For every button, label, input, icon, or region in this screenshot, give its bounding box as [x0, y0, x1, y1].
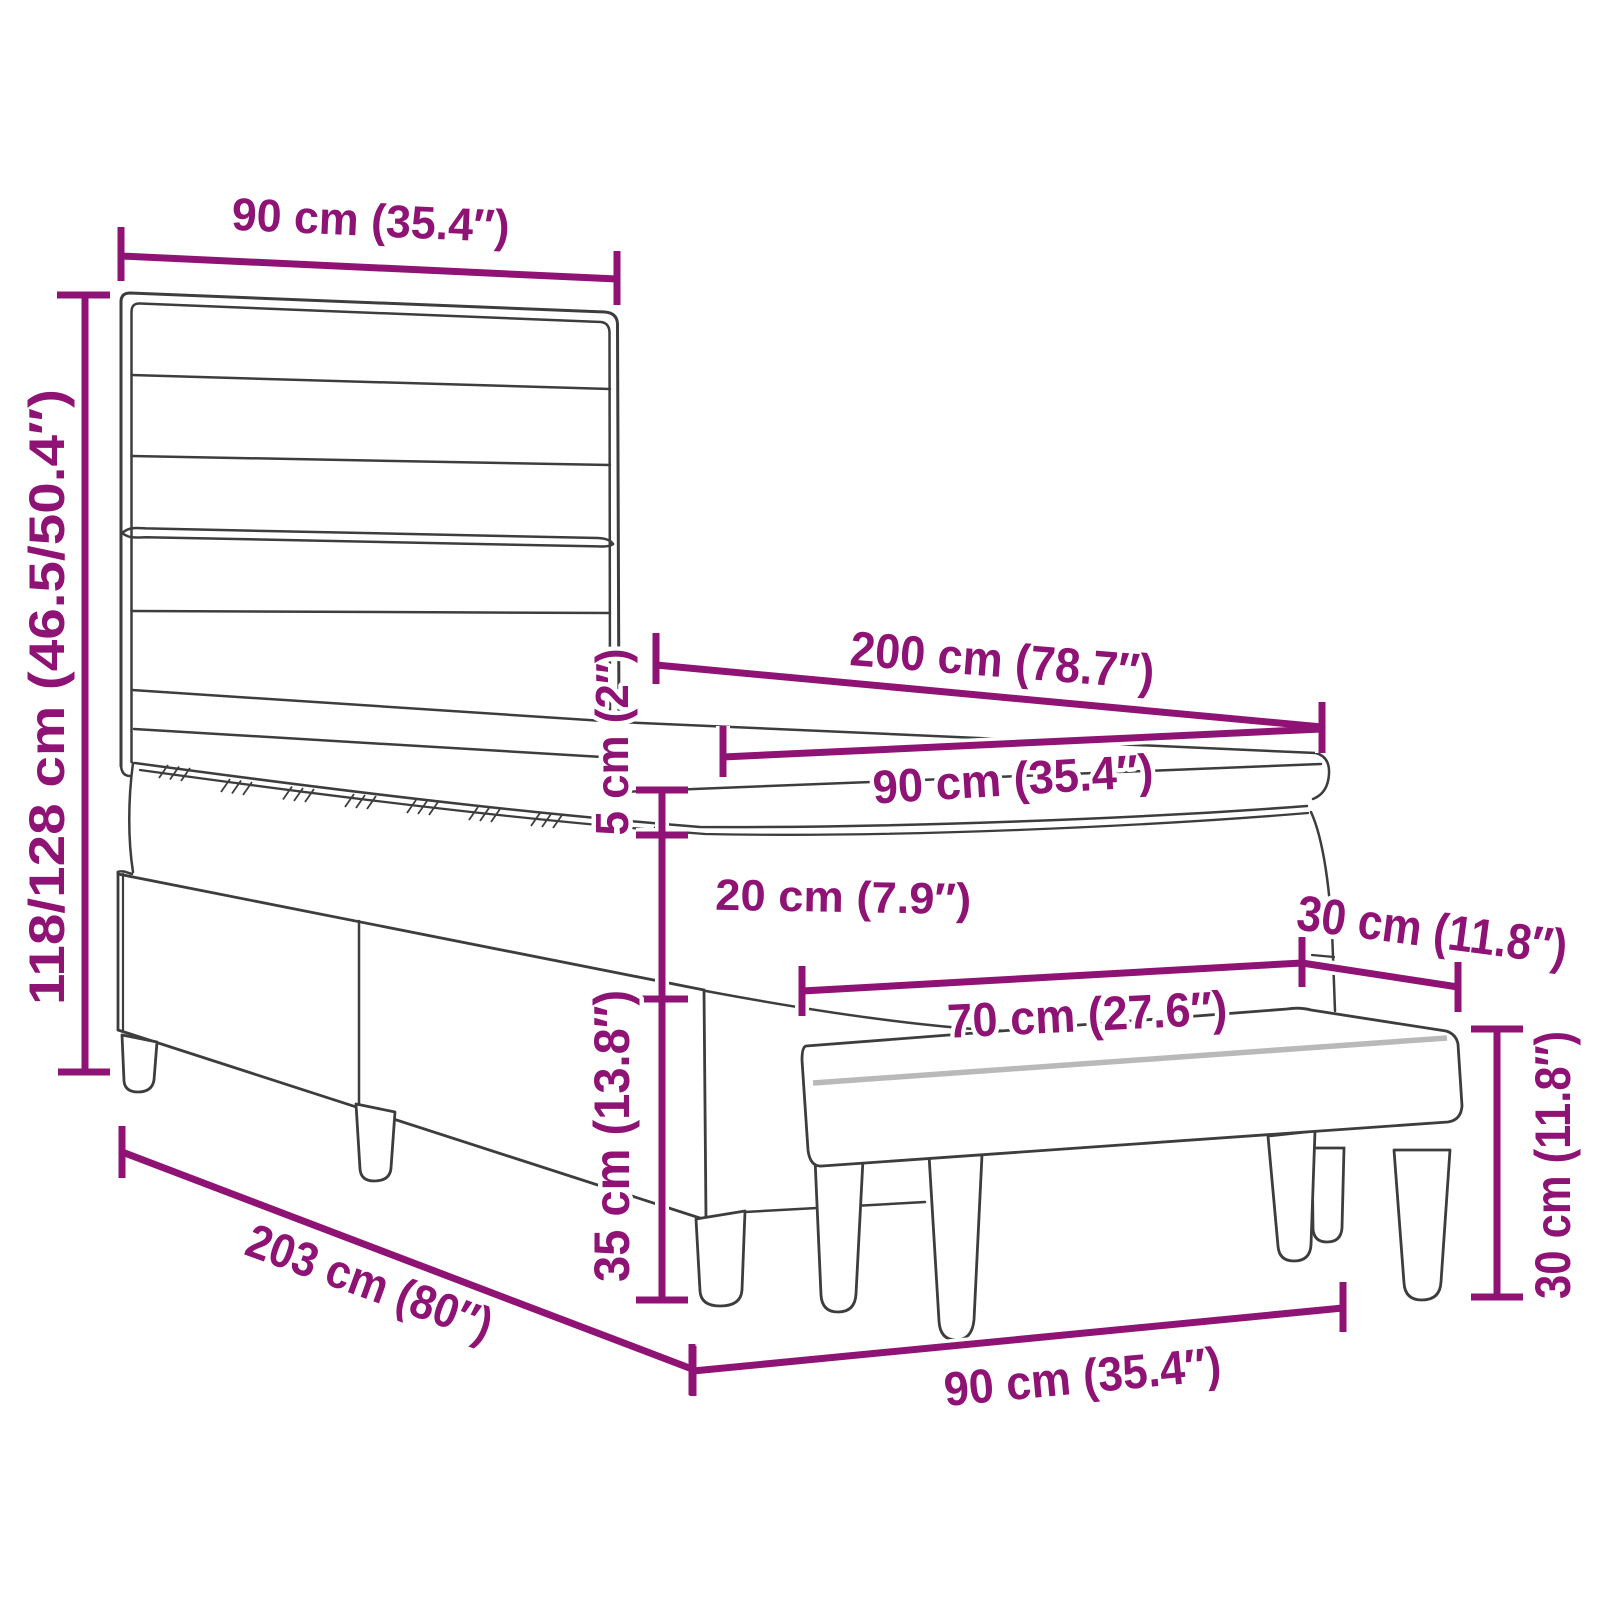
svg-text:30 cm (11.8″): 30 cm (11.8″): [1525, 1031, 1581, 1299]
svg-text:5 cm (2″): 5 cm (2″): [586, 649, 638, 836]
svg-text:118/128 cm (46.5/50.4″): 118/128 cm (46.5/50.4″): [19, 389, 75, 1005]
svg-text:35 cm (13.8″): 35 cm (13.8″): [584, 990, 640, 1282]
svg-text:20 cm (7.9″): 20 cm (7.9″): [715, 871, 972, 924]
